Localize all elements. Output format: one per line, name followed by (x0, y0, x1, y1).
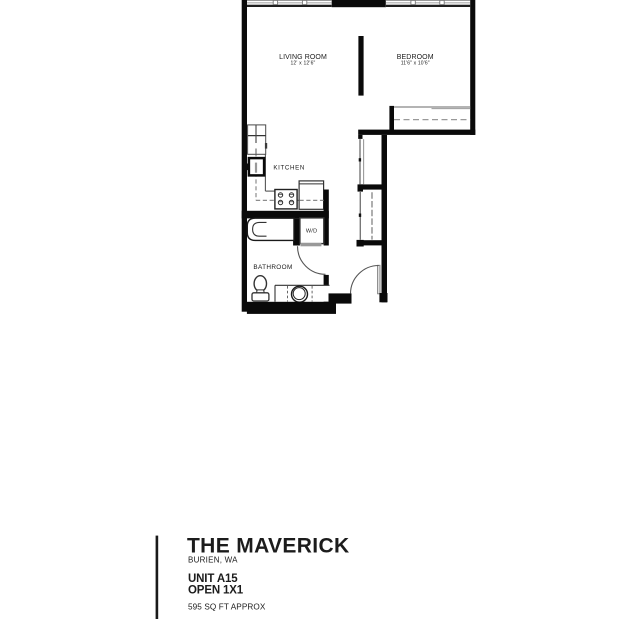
svg-text:THE MAVERICK: THE MAVERICK (187, 535, 349, 558)
svg-text:W/D: W/D (306, 229, 317, 235)
svg-text:OPEN 1X1: OPEN 1X1 (188, 585, 244, 597)
svg-text:595 SQ FT APPROX: 595 SQ FT APPROX (188, 602, 266, 611)
svg-text:12' x 12'6": 12' x 12'6" (290, 61, 315, 67)
svg-text:KITCHEN: KITCHEN (273, 164, 305, 171)
svg-text:BATHROOM: BATHROOM (253, 264, 292, 271)
svg-text:UNIT A15: UNIT A15 (188, 573, 238, 585)
svg-text:11'6" x 10'6": 11'6" x 10'6" (401, 60, 430, 66)
svg-text:BURIEN, WA: BURIEN, WA (188, 556, 238, 565)
